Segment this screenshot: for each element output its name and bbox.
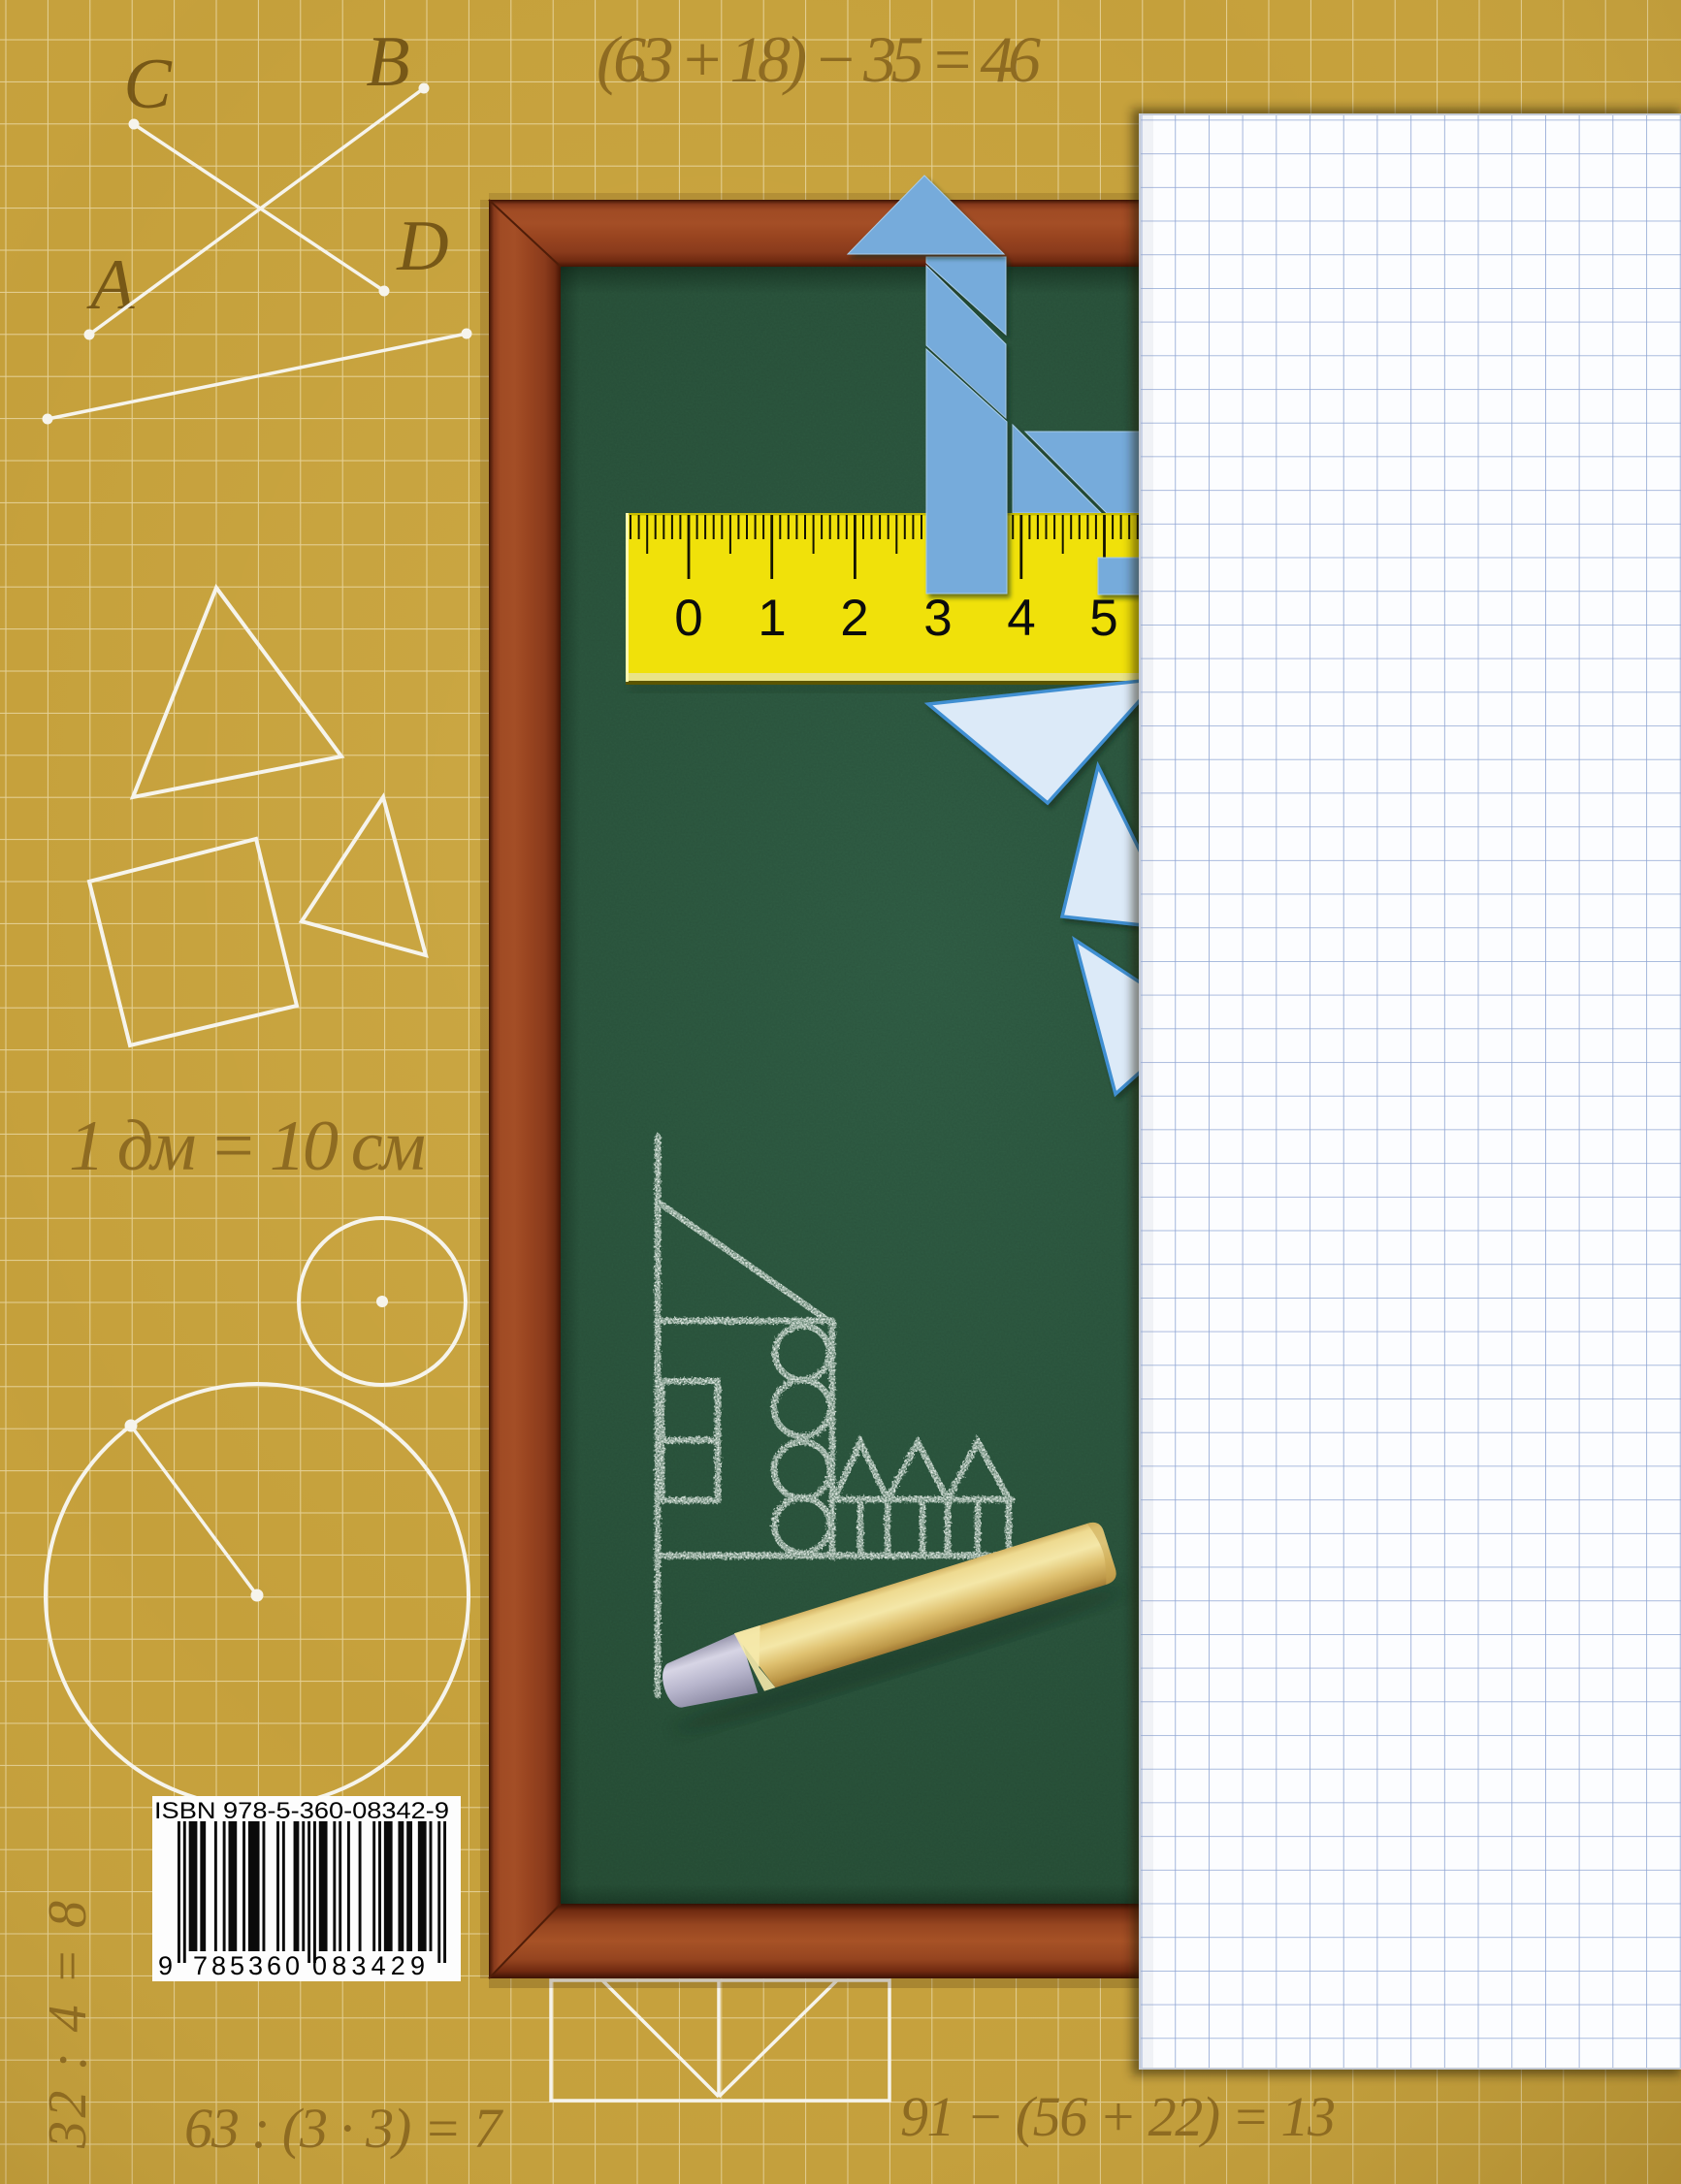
- svg-text:C: C: [123, 45, 173, 124]
- svg-text:63 : (3 · 3) = 7: 63 : (3 · 3) = 7: [184, 2097, 503, 2160]
- svg-text:91 − (56 + 22) = 13: 91 − (56 + 22) = 13: [900, 2085, 1336, 2148]
- svg-text:B: B: [366, 22, 409, 102]
- svg-text:ISBN 978-5-360-08342-9: ISBN 978-5-360-08342-9: [154, 1798, 449, 1824]
- svg-text:A: A: [85, 245, 135, 325]
- svg-text:2: 2: [840, 590, 868, 647]
- svg-text:4: 4: [1007, 590, 1035, 647]
- svg-text:9: 9: [158, 1951, 173, 1980]
- svg-text:1 дм = 10 см: 1 дм = 10 см: [69, 1107, 426, 1186]
- svg-text:5: 5: [1089, 590, 1117, 647]
- svg-text:D: D: [396, 207, 448, 286]
- svg-text:(63 + 18) − 35 = 46: (63 + 18) − 35 = 46: [597, 22, 1041, 96]
- svg-text:32 : 4 = 8: 32 : 4 = 8: [38, 1901, 98, 2149]
- svg-text:3: 3: [923, 590, 952, 647]
- svg-text:1: 1: [758, 590, 786, 647]
- svg-text:0: 0: [674, 590, 702, 647]
